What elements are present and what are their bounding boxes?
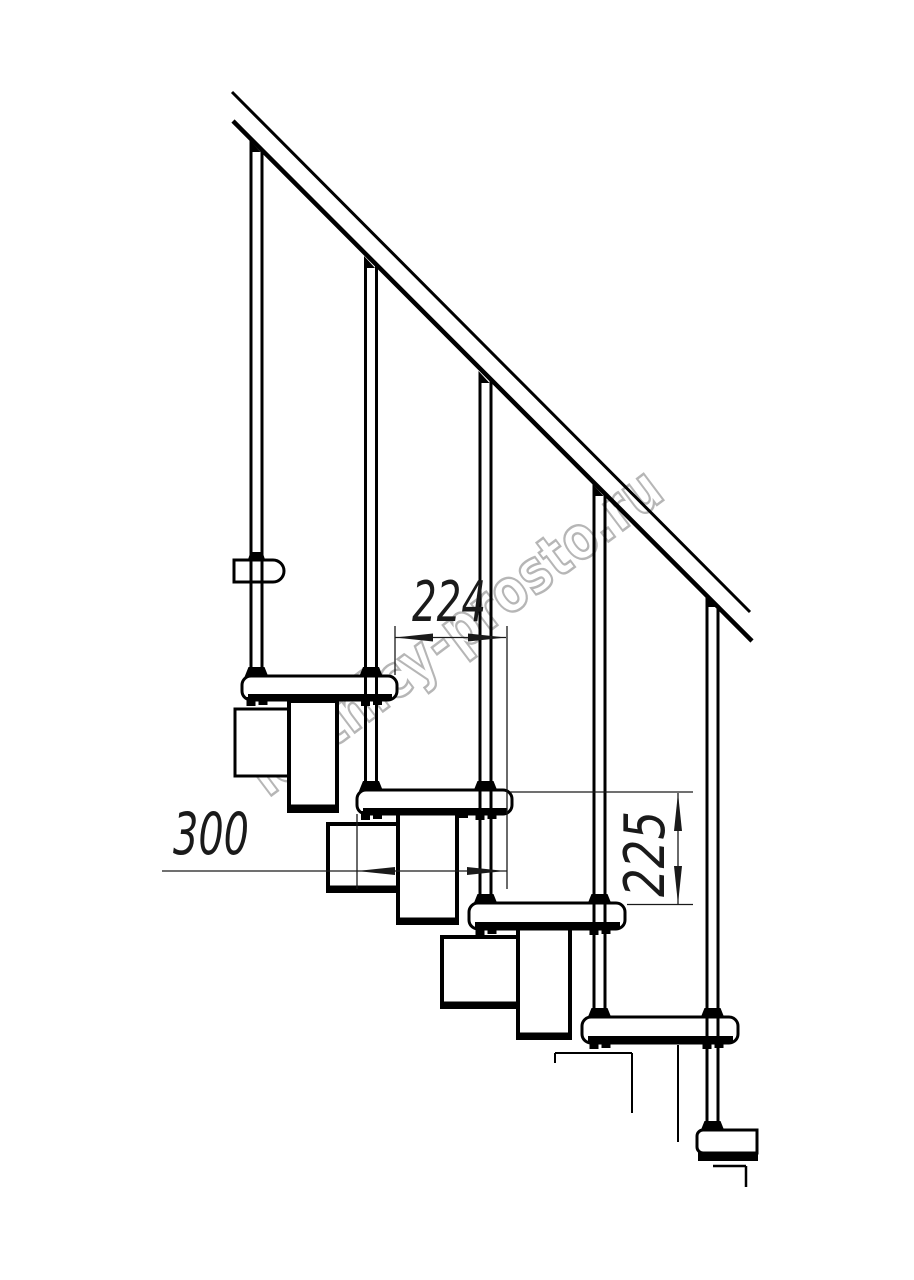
module-chain-lower: [555, 1045, 678, 1142]
module-square-1: [328, 824, 405, 891]
module-box-2: [398, 813, 457, 923]
module-box-1: [289, 701, 337, 811]
tread-5: [697, 1130, 757, 1153]
floor-module: [235, 709, 290, 776]
collar: [359, 667, 383, 677]
foot: [701, 1121, 725, 1131]
tread-5-base: [698, 1152, 758, 1161]
handrail-bracket: [234, 560, 284, 582]
dimension-rise: 225: [510, 792, 693, 905]
module-square-2: [442, 937, 518, 1007]
staircase-technical-drawing: lestnicy-prosto.ru: [0, 0, 914, 1280]
dimension-rise-label: 225: [613, 811, 678, 897]
dimension-run-label: 224: [412, 570, 486, 635]
bracket-collar: [248, 552, 266, 561]
foot: [474, 894, 498, 904]
baluster-1: [250, 140, 263, 675]
foot: [359, 781, 383, 791]
collar: [588, 894, 612, 904]
arrow-right: [467, 867, 505, 875]
tread-5-step-lines: [713, 1166, 746, 1187]
foot: [588, 1008, 612, 1018]
foot: [245, 667, 269, 677]
drawing-canvas: lestnicy-prosto.ru: [0, 0, 914, 1280]
module-box-3: [518, 927, 570, 1038]
collar: [701, 1008, 725, 1018]
dimension-depth-label: 300: [173, 800, 249, 868]
collar: [474, 781, 498, 791]
